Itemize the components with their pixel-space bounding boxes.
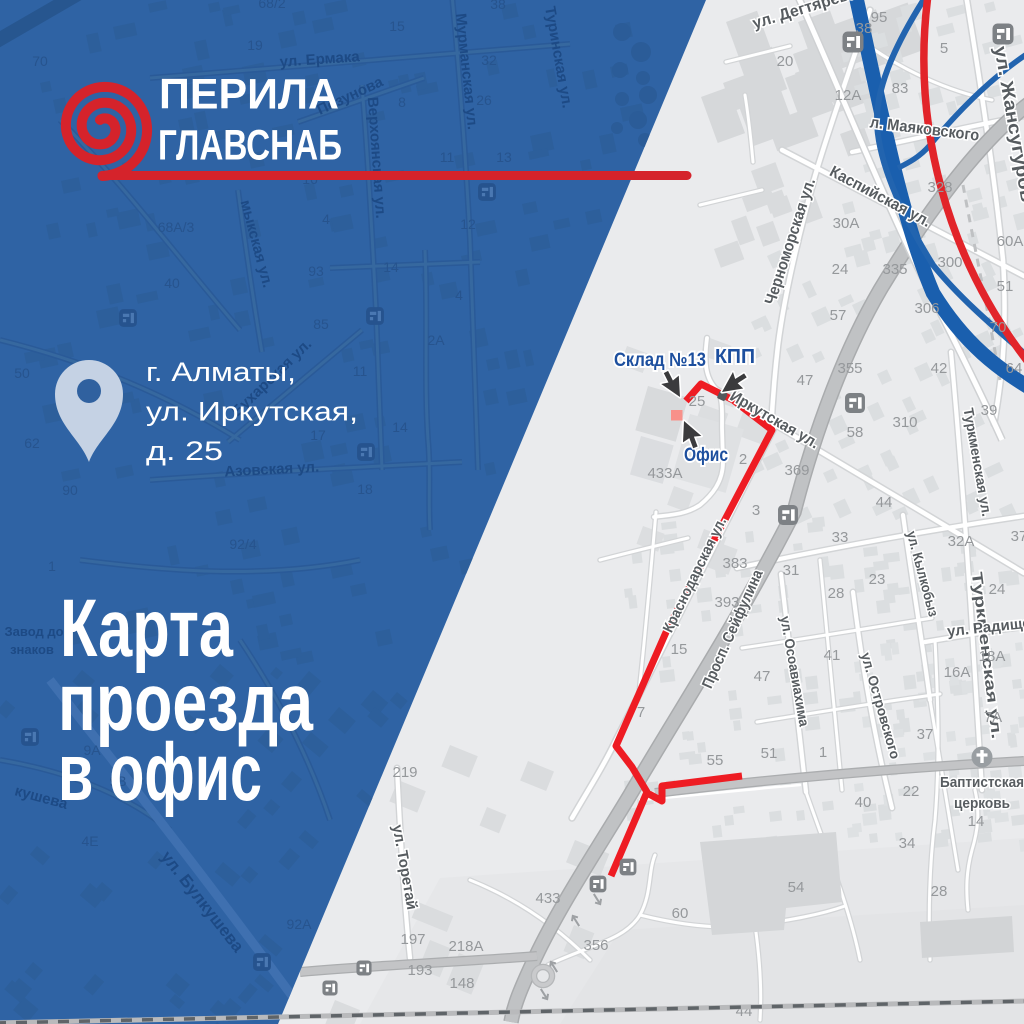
svg-text:4: 4 (455, 287, 463, 303)
svg-text:310: 310 (892, 414, 917, 431)
svg-text:41: 41 (824, 647, 841, 664)
svg-text:37: 37 (1011, 528, 1024, 545)
svg-text:369: 369 (784, 462, 809, 479)
svg-text:5: 5 (940, 40, 948, 57)
svg-text:40: 40 (164, 275, 180, 291)
svg-text:30A: 30A (833, 215, 860, 232)
svg-text:335: 335 (882, 261, 907, 278)
svg-text:12A: 12A (835, 87, 862, 104)
svg-text:7: 7 (637, 704, 645, 721)
svg-text:218A: 218A (448, 938, 483, 955)
svg-text:44: 44 (876, 494, 893, 511)
svg-text:83: 83 (892, 80, 909, 97)
svg-text:433: 433 (535, 890, 560, 907)
svg-text:18: 18 (357, 481, 373, 497)
svg-text:24: 24 (832, 261, 849, 278)
svg-text:57: 57 (830, 307, 847, 324)
svg-text:16A: 16A (944, 664, 971, 681)
svg-text:знаков: знаков (10, 642, 54, 657)
svg-text:34: 34 (899, 835, 916, 852)
svg-text:11: 11 (353, 363, 368, 379)
svg-text:ПЕРИЛА: ПЕРИЛА (159, 72, 339, 119)
svg-text:14: 14 (383, 259, 399, 275)
svg-text:Офис: Офис (684, 445, 728, 466)
svg-text:33: 33 (832, 529, 849, 546)
svg-text:219: 219 (392, 764, 417, 781)
svg-text:306: 306 (914, 300, 939, 317)
svg-text:64: 64 (1006, 360, 1023, 377)
svg-text:14: 14 (392, 419, 408, 435)
svg-text:18A: 18A (979, 648, 1006, 665)
svg-text:4Е: 4Е (81, 833, 98, 849)
svg-text:г. Алматы,: г. Алматы, (146, 357, 296, 387)
svg-text:328: 328 (927, 179, 952, 196)
svg-text:68/2: 68/2 (258, 0, 285, 11)
svg-text:433А: 433А (647, 465, 682, 482)
svg-text:95: 95 (871, 9, 888, 26)
svg-text:90: 90 (62, 482, 78, 498)
svg-text:12: 12 (460, 216, 476, 232)
svg-text:1: 1 (48, 558, 56, 574)
svg-text:25: 25 (689, 393, 706, 410)
svg-text:4: 4 (322, 211, 330, 227)
svg-text:39: 39 (981, 402, 998, 419)
svg-text:22: 22 (903, 783, 920, 800)
svg-text:2: 2 (739, 451, 747, 468)
svg-text:356: 356 (583, 937, 608, 954)
svg-text:47: 47 (754, 668, 771, 685)
svg-text:62: 62 (24, 435, 40, 451)
svg-text:28: 28 (931, 883, 948, 900)
svg-text:в офис: в офис (58, 727, 262, 818)
svg-text:15: 15 (389, 18, 405, 34)
svg-text:Баптистская: Баптистская (940, 774, 1024, 791)
svg-text:55: 55 (707, 752, 724, 769)
svg-text:85: 85 (313, 316, 329, 332)
svg-text:92A: 92A (287, 916, 313, 932)
svg-text:197: 197 (400, 931, 425, 948)
svg-text:40: 40 (855, 794, 872, 811)
svg-text:68А/3: 68А/3 (158, 219, 195, 235)
svg-text:13: 13 (496, 149, 512, 165)
svg-text:14: 14 (968, 813, 985, 830)
svg-text:193: 193 (407, 962, 432, 979)
svg-text:70: 70 (990, 319, 1007, 336)
svg-text:60A: 60A (997, 233, 1024, 250)
svg-text:92/4: 92/4 (229, 536, 256, 552)
svg-text:церковь: церковь (954, 795, 1010, 812)
svg-text:24: 24 (989, 581, 1006, 598)
svg-text:2А: 2А (427, 332, 445, 348)
svg-text:383: 383 (722, 555, 747, 572)
svg-text:393: 393 (714, 594, 739, 611)
svg-text:60: 60 (672, 905, 689, 922)
svg-text:17: 17 (310, 427, 326, 443)
svg-text:28: 28 (828, 585, 845, 602)
svg-text:31: 31 (783, 562, 800, 579)
svg-text:355: 355 (837, 360, 862, 377)
svg-text:148: 148 (449, 975, 474, 992)
svg-text:37: 37 (917, 726, 934, 743)
svg-text:23: 23 (869, 571, 886, 588)
svg-text:51: 51 (997, 278, 1014, 295)
svg-text:26: 26 (476, 92, 492, 108)
svg-text:20: 20 (777, 53, 794, 70)
svg-text:50: 50 (14, 365, 30, 381)
svg-text:7A: 7A (984, 709, 1002, 726)
svg-text:15: 15 (671, 641, 688, 658)
svg-text:47: 47 (797, 372, 814, 389)
svg-text:д. 25: д. 25 (146, 436, 223, 466)
svg-text:42: 42 (931, 360, 948, 377)
svg-text:ГЛАВСНАБ: ГЛАВСНАБ (158, 122, 342, 170)
svg-text:32: 32 (481, 52, 497, 68)
svg-text:38: 38 (490, 0, 506, 12)
svg-text:Склад №13: Склад №13 (614, 350, 706, 371)
svg-text:ул. Иркутская,: ул. Иркутская, (146, 397, 358, 427)
svg-text:11: 11 (440, 149, 455, 165)
svg-text:93: 93 (308, 263, 324, 279)
svg-text:19: 19 (247, 37, 263, 53)
svg-text:70: 70 (32, 53, 48, 69)
svg-text:54: 54 (788, 879, 805, 896)
svg-text:32A: 32A (948, 533, 975, 550)
svg-text:3: 3 (752, 502, 760, 519)
svg-text:51: 51 (761, 745, 778, 762)
svg-text:КПП: КПП (715, 346, 755, 368)
svg-text:8: 8 (398, 94, 406, 110)
svg-text:300: 300 (937, 254, 962, 271)
svg-text:1: 1 (819, 744, 827, 761)
svg-text:58: 58 (847, 424, 864, 441)
